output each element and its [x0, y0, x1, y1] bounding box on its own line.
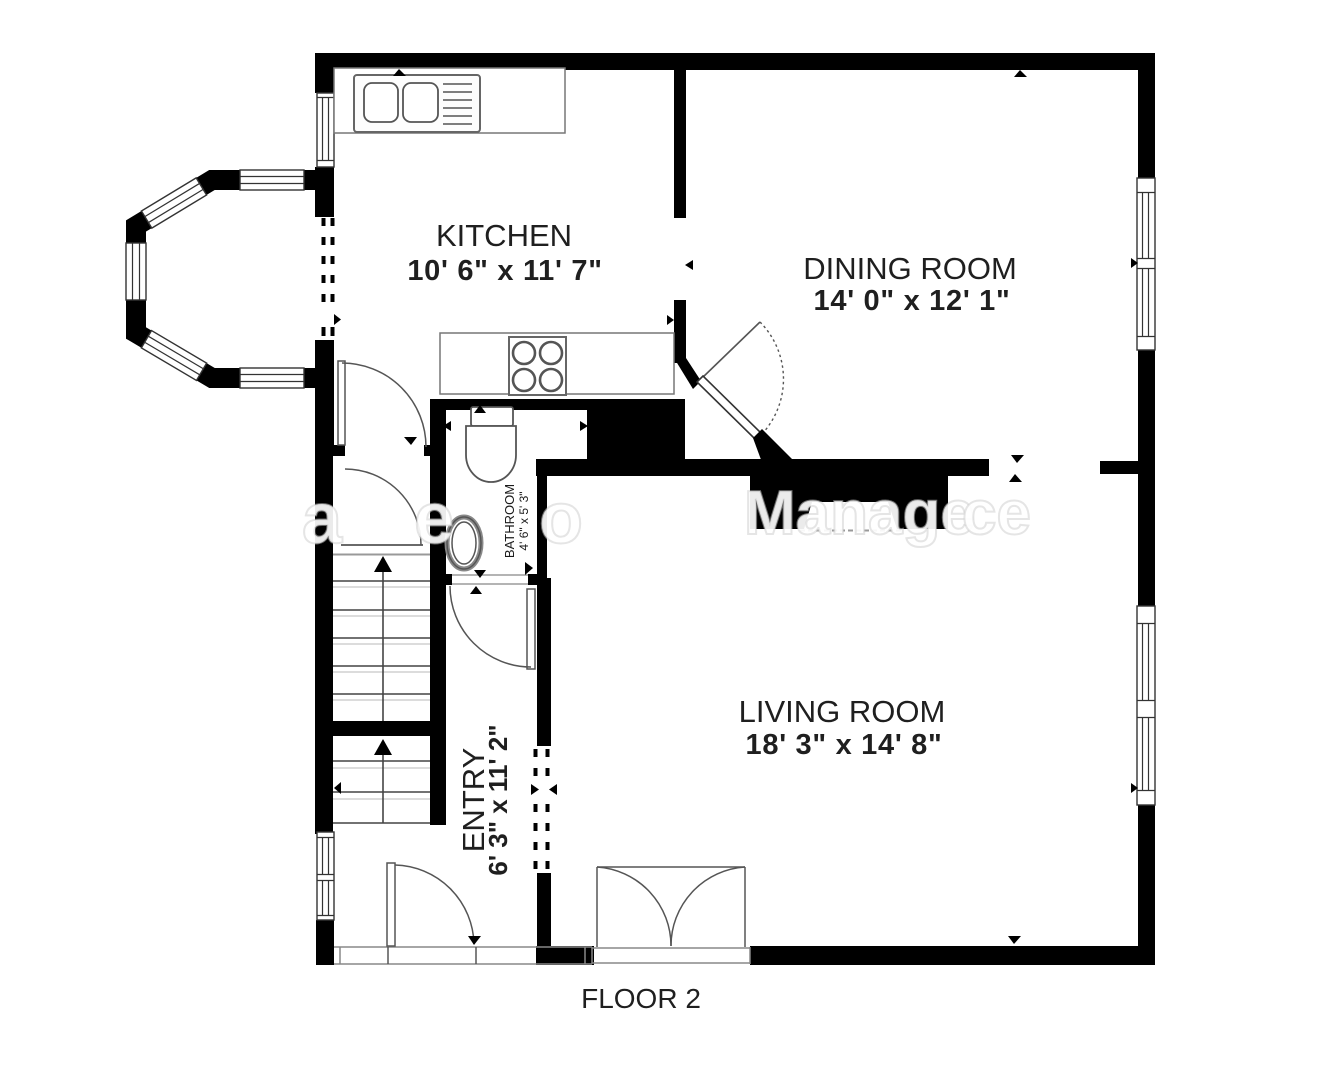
svg-text:14' 0" x 12' 1": 14' 0" x 12' 1" — [814, 285, 1011, 317]
svg-text:BATHROOM: BATHROOM — [502, 484, 517, 558]
svg-text:10' 6" x 11' 7": 10' 6" x 11' 7" — [407, 255, 602, 287]
svg-text:o: o — [539, 479, 583, 559]
svg-text:FLOOR 2: FLOOR 2 — [581, 983, 701, 1014]
svg-text:e: e — [414, 479, 454, 559]
svg-text:6' 3" x 11' 2": 6' 3" x 11' 2" — [483, 724, 513, 875]
svg-text:4' 6" x 5' 3": 4' 6" x 5' 3" — [517, 491, 531, 550]
svg-text:a: a — [302, 479, 343, 559]
svg-text:ce: ce — [962, 479, 1031, 548]
svg-text:KITCHEN: KITCHEN — [436, 218, 572, 253]
svg-text:LIVING ROOM: LIVING ROOM — [739, 694, 946, 729]
svg-text:DINING ROOM: DINING ROOM — [803, 251, 1017, 286]
svg-text:18' 3" x 14' 8": 18' 3" x 14' 8" — [746, 729, 943, 761]
svg-text:Manage: Manage — [744, 479, 975, 548]
